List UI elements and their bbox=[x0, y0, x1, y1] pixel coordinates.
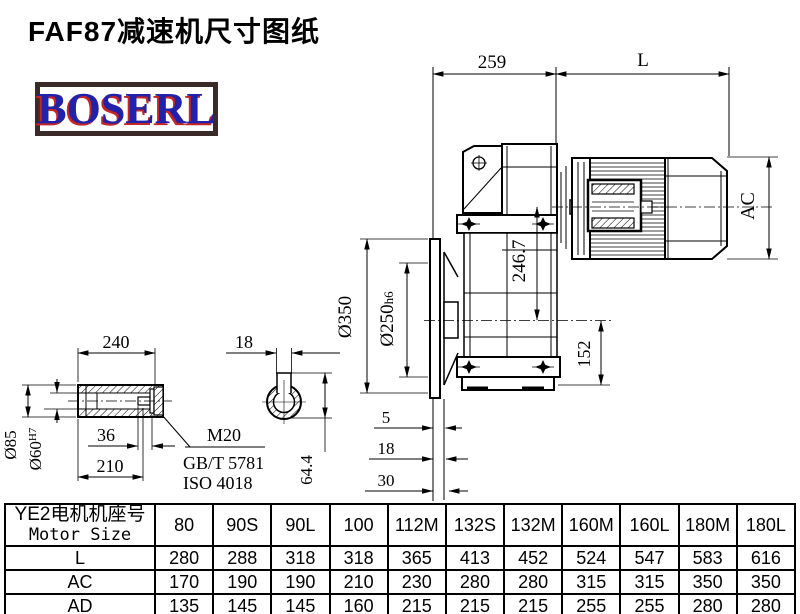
table-cell: 280 bbox=[446, 570, 504, 594]
table-cell: 365 bbox=[388, 546, 446, 570]
shaft-end-view bbox=[226, 348, 340, 452]
table-cell: 315 bbox=[620, 570, 678, 594]
table-cell: 210 bbox=[330, 570, 388, 594]
dimension-drawing: 259 L bbox=[0, 0, 800, 505]
table-header-row: YE2电机机座号 Motor Size 80 90S 90L 100 112M … bbox=[5, 504, 795, 546]
dim-L: L bbox=[637, 50, 649, 71]
dim-30: 30 bbox=[378, 471, 395, 490]
table-cell: 413 bbox=[446, 546, 504, 570]
dim-64-4: 64.4 bbox=[297, 455, 316, 485]
table-cell: 280 bbox=[155, 546, 213, 570]
table-cell: 170 bbox=[155, 570, 213, 594]
col-header: 80 bbox=[155, 504, 213, 546]
table-cell: 280 bbox=[679, 594, 737, 614]
dim-36: 36 bbox=[97, 425, 115, 445]
dim-key-18: 18 bbox=[235, 332, 253, 352]
bolt-standard-iso: ISO 4018 bbox=[183, 473, 253, 493]
table-cell: 318 bbox=[330, 546, 388, 570]
table-cell: 190 bbox=[213, 570, 271, 594]
table-cell: 255 bbox=[620, 594, 678, 614]
dim-246: 246.7 bbox=[509, 240, 530, 283]
table-cell: 145 bbox=[213, 594, 271, 614]
table-cell: 350 bbox=[737, 570, 795, 594]
dim-18b: 18 bbox=[378, 439, 395, 458]
bolt-standard-gb: GB/T 5781 bbox=[183, 453, 264, 473]
table-cell: 280 bbox=[504, 570, 562, 594]
table-cell: 145 bbox=[271, 594, 329, 614]
dim-85: Ø85 bbox=[1, 430, 20, 459]
col-header: 180M bbox=[679, 504, 737, 546]
table-cell: 315 bbox=[562, 570, 620, 594]
dim-250h6: Ø250h6 bbox=[377, 291, 398, 347]
table-header-en: Motor Size bbox=[6, 526, 154, 545]
col-header: 132S bbox=[446, 504, 504, 546]
dim-240: 240 bbox=[103, 332, 130, 352]
col-header: 90L bbox=[271, 504, 329, 546]
table-cell: 215 bbox=[446, 594, 504, 614]
dim-AC: AC bbox=[737, 192, 759, 220]
output-flange bbox=[430, 239, 458, 398]
table-cell: 215 bbox=[388, 594, 446, 614]
col-header: 160L bbox=[620, 504, 678, 546]
dim-5: 5 bbox=[382, 408, 391, 427]
table-cell: 318 bbox=[271, 546, 329, 570]
row-label: L bbox=[5, 546, 155, 570]
table-row-L: L 280 288 318 318 365 413 452 524 547 58… bbox=[5, 546, 795, 570]
table-cell: 524 bbox=[562, 546, 620, 570]
table-header-cell: YE2电机机座号 Motor Size bbox=[5, 504, 155, 546]
shaft-detail-view bbox=[68, 385, 172, 417]
col-header: 132M bbox=[504, 504, 562, 546]
col-header: 100 bbox=[330, 504, 388, 546]
table-cell: 230 bbox=[388, 570, 446, 594]
table-cell: 452 bbox=[504, 546, 562, 570]
table-row-AC: AC 170 190 190 210 230 280 280 315 315 3… bbox=[5, 570, 795, 594]
dim-350: Ø350 bbox=[335, 296, 356, 338]
fan-cover bbox=[665, 158, 727, 259]
table-cell: 160 bbox=[330, 594, 388, 614]
table-cell: 255 bbox=[562, 594, 620, 614]
col-header: 160M bbox=[562, 504, 620, 546]
dim-259: 259 bbox=[478, 52, 507, 73]
table-cell: 135 bbox=[155, 594, 213, 614]
bolt-label: M20 bbox=[207, 425, 241, 445]
col-header: 90S bbox=[213, 504, 271, 546]
motor-size-table: YE2电机机座号 Motor Size 80 90S 90L 100 112M … bbox=[4, 503, 796, 614]
table-cell: 190 bbox=[271, 570, 329, 594]
table-cell: 288 bbox=[213, 546, 271, 570]
table-cell: 616 bbox=[737, 546, 795, 570]
col-header: 112M bbox=[388, 504, 446, 546]
table-row-AD: AD 135 145 145 160 215 215 215 255 255 2… bbox=[5, 594, 795, 614]
table-cell: 583 bbox=[679, 546, 737, 570]
row-label: AD bbox=[5, 594, 155, 614]
motor bbox=[561, 158, 727, 259]
dim-152: 152 bbox=[574, 341, 594, 368]
page: FAF87减速机尺寸图纸 BOSERL 259 L bbox=[0, 0, 800, 614]
table-cell: 350 bbox=[679, 570, 737, 594]
dim-210: 210 bbox=[97, 456, 124, 476]
table-cell: 547 bbox=[620, 546, 678, 570]
row-label: AC bbox=[5, 570, 155, 594]
table-header-cn: YE2电机机座号 bbox=[6, 505, 154, 526]
table-cell: 280 bbox=[737, 594, 795, 614]
table-cell: 215 bbox=[504, 594, 562, 614]
dim-60H7: Ø60H7 bbox=[26, 427, 45, 470]
col-header: 180L bbox=[737, 504, 795, 546]
